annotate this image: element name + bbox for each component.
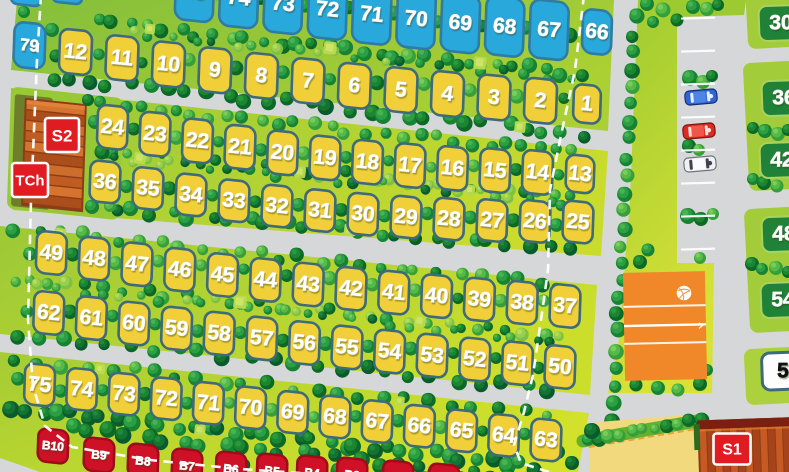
svg-text:61: 61: [79, 306, 105, 331]
svg-text:44: 44: [253, 267, 279, 292]
svg-text:24: 24: [100, 115, 126, 140]
svg-text:67: 67: [536, 17, 562, 42]
svg-text:37: 37: [552, 293, 578, 318]
svg-text:59: 59: [164, 316, 190, 341]
svg-text:55: 55: [334, 335, 360, 360]
svg-text:47: 47: [124, 252, 150, 277]
svg-text:12: 12: [63, 39, 89, 64]
svg-text:40: 40: [424, 284, 450, 309]
svg-text:60: 60: [121, 311, 147, 336]
svg-text:34: 34: [178, 182, 204, 207]
svg-text:65: 65: [449, 418, 475, 443]
svg-text:53: 53: [419, 343, 445, 368]
svg-text:20: 20: [270, 140, 296, 165]
svg-text:75: 75: [27, 372, 53, 397]
svg-text:33: 33: [221, 188, 247, 213]
svg-text:TCh: TCh: [15, 173, 44, 190]
svg-text:6: 6: [348, 74, 362, 98]
svg-text:48: 48: [772, 223, 789, 246]
svg-text:19: 19: [312, 145, 338, 170]
svg-text:30: 30: [769, 12, 789, 35]
svg-text:67: 67: [364, 409, 390, 434]
svg-text:B6: B6: [223, 461, 240, 472]
svg-text:54: 54: [771, 289, 789, 312]
svg-text:15: 15: [482, 158, 508, 183]
svg-text:51: 51: [505, 351, 531, 376]
svg-text:35: 35: [135, 176, 161, 201]
svg-text:70: 70: [403, 6, 429, 31]
svg-text:63: 63: [533, 427, 559, 452]
svg-text:73: 73: [111, 381, 137, 406]
svg-text:70: 70: [238, 395, 264, 420]
svg-text:74: 74: [69, 377, 95, 402]
svg-text:72: 72: [153, 386, 179, 411]
svg-text:54: 54: [377, 339, 403, 364]
svg-text:B3: B3: [344, 467, 361, 472]
svg-text:B4: B4: [304, 465, 321, 472]
svg-text:B7: B7: [179, 458, 196, 472]
svg-text:39: 39: [467, 287, 493, 312]
svg-text:52: 52: [462, 347, 488, 372]
svg-text:5: 5: [777, 360, 789, 383]
svg-text:48: 48: [81, 246, 107, 271]
svg-text:42: 42: [338, 276, 364, 301]
svg-text:16: 16: [440, 156, 466, 181]
svg-text:14: 14: [525, 160, 551, 185]
svg-text:72: 72: [315, 0, 341, 22]
svg-text:3: 3: [487, 85, 501, 109]
svg-text:50: 50: [547, 354, 573, 379]
svg-text:57: 57: [249, 326, 275, 351]
svg-text:36: 36: [772, 87, 789, 110]
svg-text:13: 13: [567, 161, 593, 186]
svg-text:46: 46: [167, 257, 193, 282]
svg-text:49: 49: [39, 240, 65, 265]
svg-text:32: 32: [264, 193, 290, 218]
svg-text:22: 22: [185, 128, 211, 153]
svg-text:68: 68: [492, 14, 518, 39]
svg-text:68: 68: [322, 404, 348, 429]
svg-text:41: 41: [381, 280, 407, 305]
svg-text:30: 30: [350, 202, 376, 227]
svg-text:43: 43: [295, 272, 321, 297]
svg-text:36: 36: [92, 169, 118, 194]
svg-text:17: 17: [397, 153, 423, 178]
svg-text:66: 66: [407, 414, 433, 439]
svg-text:25: 25: [565, 209, 591, 234]
svg-text:73: 73: [270, 0, 296, 17]
svg-text:21: 21: [227, 135, 253, 160]
svg-text:71: 71: [196, 391, 222, 416]
svg-text:31: 31: [307, 198, 333, 223]
svg-text:7: 7: [301, 69, 315, 93]
svg-text:66: 66: [584, 19, 610, 44]
svg-text:2: 2: [534, 89, 548, 113]
svg-text:9: 9: [208, 58, 222, 82]
svg-text:42: 42: [770, 149, 789, 172]
svg-text:69: 69: [448, 10, 474, 35]
svg-text:38: 38: [509, 290, 535, 315]
svg-text:69: 69: [280, 400, 306, 425]
svg-text:56: 56: [292, 330, 318, 355]
svg-text:71: 71: [359, 2, 385, 27]
svg-text:62: 62: [36, 300, 62, 325]
svg-text:10: 10: [156, 52, 182, 77]
svg-text:26: 26: [522, 209, 548, 234]
svg-text:29: 29: [393, 204, 419, 229]
svg-text:28: 28: [436, 206, 462, 231]
svg-text:23: 23: [142, 122, 168, 147]
svg-text:11: 11: [110, 46, 135, 71]
svg-text:S1: S1: [722, 442, 742, 459]
svg-text:18: 18: [355, 150, 381, 175]
svg-text:58: 58: [206, 321, 232, 346]
svg-text:45: 45: [210, 262, 236, 287]
svg-text:27: 27: [479, 208, 505, 233]
svg-text:S2: S2: [52, 127, 73, 146]
